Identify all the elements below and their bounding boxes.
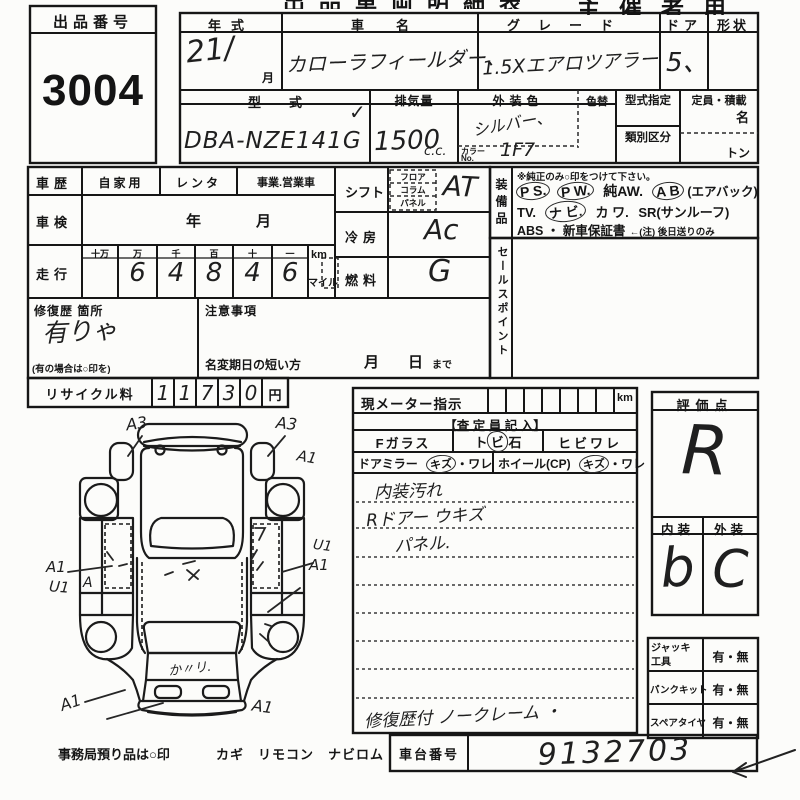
interior-grade-value: b — [650, 535, 704, 601]
equip-sunroof: SR(サンルーフ) — [638, 205, 729, 220]
wheel-label: ホイール(CP) — [498, 457, 571, 471]
annotation-a1-right: A1 — [309, 556, 329, 574]
annotation-u1-right: U1 — [312, 537, 333, 556]
annotation-a1-left: A1 — [46, 558, 66, 576]
year-month-suffix: 月 — [262, 69, 274, 86]
puncture-kit-value: 有・無 — [703, 681, 758, 698]
jack-tools-label: ジャッキ工具 — [651, 642, 697, 669]
fuel-label: 燃料 — [345, 270, 381, 289]
fuel-value: G — [428, 254, 451, 289]
inspector-note-3: パネル. — [393, 528, 451, 557]
exterior-color-label: 外装色 — [458, 92, 578, 109]
type-designation-label: 型式指定 — [616, 92, 680, 108]
car-history-private: 自家用 — [82, 174, 160, 191]
color-no-value: 1F7 — [500, 139, 535, 161]
chassis-no-label: 車台番号 — [390, 744, 468, 763]
car-name-label: 車名 — [282, 15, 478, 34]
name-change-deadline-label: 名変期日の短い方 — [205, 356, 301, 373]
inspection-month-unit: 月 — [256, 210, 271, 231]
annotation-a-sill: A — [83, 575, 93, 591]
recycle-fee-label: リサイクル料 — [28, 384, 152, 403]
stone-chip-post: 石 — [509, 435, 522, 450]
annotation-a3-right: A3 — [275, 413, 298, 434]
color-change-label: 色替 — [578, 93, 616, 109]
stone-chip-cell: トビ石 — [453, 431, 543, 452]
annotation-a1-right-top: A1 — [296, 446, 319, 467]
meter-km-unit: km — [617, 392, 633, 404]
model-checkmark: ✓ — [349, 100, 366, 124]
current-meter-label: 現メーター指示 — [361, 393, 463, 413]
equip-aw: 純AW. — [603, 183, 643, 199]
shift-column-option: コラム — [391, 184, 435, 196]
equipment-line-1: P S. P W. 純AW. A B (エアバック) — [516, 181, 758, 201]
door-mirror-cell: ドアミラー キズ・ワレ — [358, 455, 492, 473]
repair-history-value: 有りゃ — [41, 310, 118, 350]
sales-point-label: セールスポイント — [494, 246, 510, 374]
stone-chip-circled: ビ — [487, 430, 510, 453]
deadline-until-label: まで — [432, 356, 452, 371]
repair-history-note: (有の場合は○印を) — [32, 361, 111, 375]
stone-chip-pre: ト — [474, 435, 487, 450]
mileage-mile-unit: マイル — [308, 274, 338, 289]
door-mirror-label: ドアミラー — [358, 457, 418, 471]
shift-value: AT — [442, 169, 478, 204]
exterior-grade-label: 外装 — [703, 519, 758, 538]
equipment-line-3: ABS ・ 新車保証書 ←(注) 後日送りのみ — [517, 220, 715, 240]
shift-floor-option: フロア — [391, 171, 435, 183]
office-items-note: 事務局預り品は○印 — [58, 744, 170, 763]
evaluation-score-value: R — [651, 410, 760, 493]
annotation-a3-left: A3 — [125, 413, 149, 435]
recycle-digit-3: 3 — [218, 381, 240, 405]
capacity-tons-unit: トン — [726, 144, 750, 161]
equip-abs-warranty: ABS ・ 新車保証書 — [517, 224, 625, 238]
shift-label: シフト — [345, 182, 384, 201]
color-no-label-2: No. — [461, 154, 474, 163]
inspection-year-unit: 年 — [186, 210, 201, 231]
recycle-digit-0: 1 — [152, 381, 174, 405]
recycle-yen-unit: 円 — [262, 385, 288, 404]
car-history-label: 車歴 — [36, 173, 72, 192]
exterior-grade-value: C — [703, 540, 758, 600]
crack-label: ヒビワレ — [543, 433, 637, 452]
office-items-list: カギ リモコン ナビロム — [216, 744, 384, 763]
spare-tire-value: 有・無 — [703, 714, 758, 731]
displacement-unit: c.c. — [424, 144, 447, 159]
shape-label: 形状 — [708, 15, 758, 34]
model-value: DBA-NZE141G — [184, 128, 362, 154]
year-value: 21/ — [184, 31, 236, 71]
front-glass-label: Fガラス — [353, 433, 453, 452]
mileage-digit-4: 4 — [233, 258, 272, 288]
car-history-commercial: 事業.営業車 — [237, 174, 335, 190]
equip-ps: P S. — [515, 181, 551, 202]
recycle-digit-2: 7 — [196, 381, 218, 405]
equip-pw: P W. — [556, 180, 595, 201]
exhibit-no-label: 出品番号 — [30, 11, 156, 32]
mileage-place-100k: 十万 — [82, 247, 118, 260]
organizer-use-label: 主催者用 — [577, 0, 767, 15]
equip-ab: A B — [651, 181, 684, 202]
equip-airbag: (エアバック) — [687, 185, 757, 199]
equipment-line-2: TV. ナ ビ. カ ワ. SR(サンルーフ) — [517, 201, 729, 222]
wheel-crack-label: ・ワレ — [609, 457, 645, 471]
mileage-digit-2: 4 — [157, 258, 195, 288]
mileage-digit-1: 6 — [118, 258, 157, 288]
puncture-kit-label: パンクキット — [650, 682, 707, 696]
recycle-digit-1: 1 — [174, 381, 196, 405]
inspector-note-1: 内装汚れ — [374, 476, 443, 503]
inspection-label: 車検 — [36, 212, 72, 231]
deadline-month-unit: 月 — [364, 351, 379, 372]
mileage-label: 走行 — [36, 264, 72, 283]
model-label: 型式 — [180, 92, 370, 111]
aircon-label: 冷房 — [345, 227, 381, 246]
exhibit-no-value: 3004 — [30, 66, 156, 116]
capacity-label: 定員・積載 — [680, 92, 758, 108]
shift-panel-option: パネル — [391, 197, 435, 209]
aircon-value: Ac — [424, 213, 459, 246]
recycle-digit-4: 0 — [240, 381, 262, 405]
spare-tire-label: スペアタイヤ — [650, 715, 706, 729]
capacity-persons-unit: 名 — [736, 107, 749, 126]
mileage-km-unit: km — [311, 249, 327, 261]
mileage-digit-3: 8 — [195, 258, 233, 288]
deadline-day-unit: 日 — [408, 351, 423, 372]
equip-tv: TV. — [517, 205, 536, 220]
auction-sheet: 出品車両明細表 主催者用 出品番号 3004 年式 車名 グレード ドア 形状 … — [0, 0, 800, 800]
equipment-label: 装備品 — [492, 172, 510, 234]
class-division-label: 類別区分 — [616, 129, 680, 145]
wheel-scratch-circled: キズ — [578, 454, 609, 475]
wheel-cell: ホイール(CP) キズ・ワレ — [498, 455, 645, 473]
annotation-u1-left: U1 — [48, 577, 70, 597]
mileage-digit-5: 6 — [272, 258, 308, 288]
door-value: 5、 — [666, 42, 709, 79]
door-label: ドア — [660, 15, 708, 34]
annotation-a1-bottom-right: A1 — [251, 696, 275, 718]
displacement-label: 排気量 — [370, 92, 458, 109]
grade-label: グレード — [478, 15, 660, 34]
equip-kawa: カ ワ. — [596, 205, 629, 220]
car-history-rental: レンタ — [160, 174, 237, 191]
caution-label: 注意事項 — [205, 302, 257, 319]
equip-abs-note: ←(注) 後日送りのみ — [630, 227, 715, 238]
jack-tools-value: 有・無 — [703, 648, 758, 665]
door-mirror-crack-label: ・ワレ — [456, 457, 492, 471]
door-mirror-scratch-circled: キズ — [425, 454, 456, 475]
